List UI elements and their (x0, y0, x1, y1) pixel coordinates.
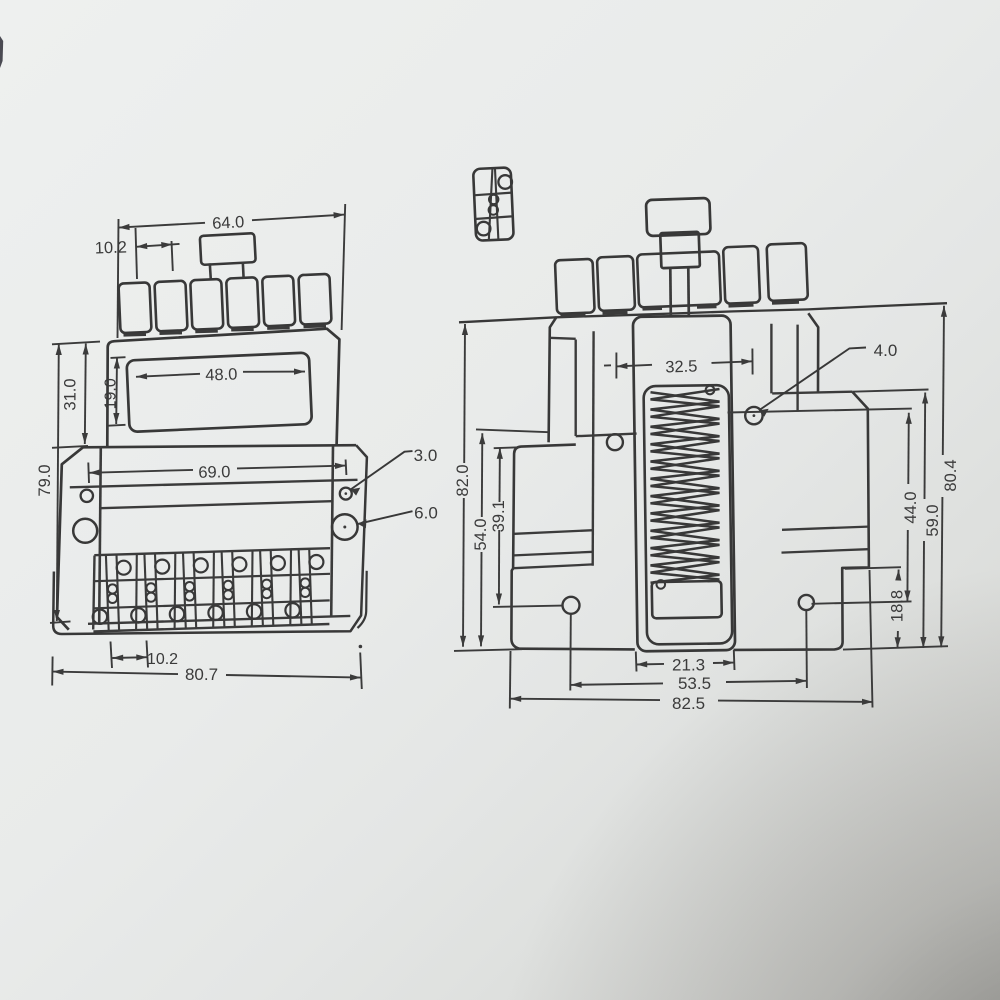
svg-text:4.0: 4.0 (874, 341, 898, 360)
svg-text:3.0: 3.0 (414, 446, 438, 465)
svg-text:53.5: 53.5 (678, 674, 711, 693)
svg-text:64.0: 64.0 (212, 213, 245, 233)
svg-text:82.0: 82.0 (454, 464, 472, 496)
svg-text:19.0: 19.0 (102, 378, 119, 409)
svg-text:69.0: 69.0 (198, 463, 231, 482)
svg-text:48.0: 48.0 (205, 365, 238, 384)
svg-text:82.5: 82.5 (672, 694, 705, 713)
svg-text:18.8: 18.8 (889, 590, 907, 622)
svg-text:32.5: 32.5 (665, 357, 698, 376)
svg-text:79.0: 79.0 (36, 464, 54, 496)
svg-text:44.0: 44.0 (902, 491, 920, 523)
svg-text:39.1: 39.1 (490, 500, 508, 532)
svg-text:31.0: 31.0 (62, 378, 80, 410)
svg-text:10.2: 10.2 (94, 238, 127, 257)
svg-text:6.0: 6.0 (414, 504, 438, 523)
svg-text:54.0: 54.0 (472, 518, 490, 550)
svg-text:80.7: 80.7 (185, 665, 218, 684)
svg-text:80.4: 80.4 (942, 459, 960, 491)
svg-text:21.3: 21.3 (672, 656, 705, 675)
svg-text:10.2: 10.2 (147, 651, 178, 668)
svg-text:59.0: 59.0 (924, 504, 942, 536)
